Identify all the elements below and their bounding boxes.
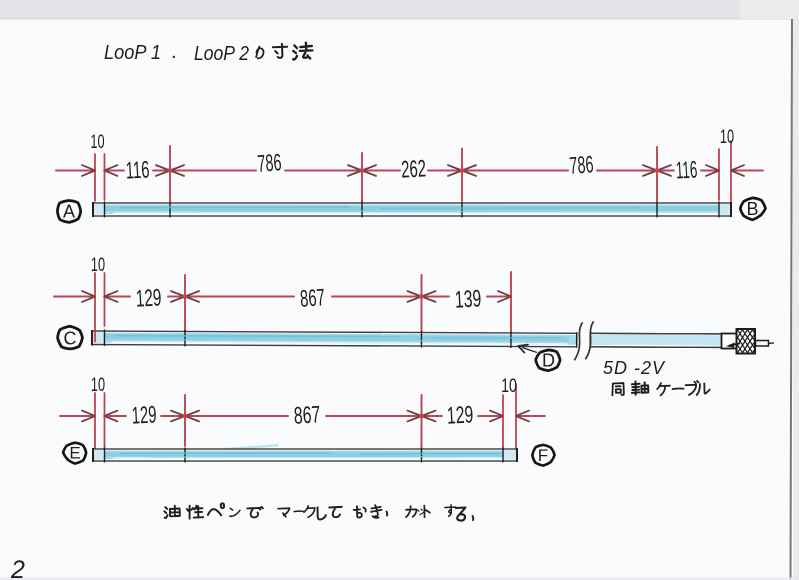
svg-text:129: 129 <box>135 285 162 313</box>
svg-text:867: 867 <box>293 402 321 429</box>
svg-text:D: D <box>542 351 555 371</box>
svg-text:10: 10 <box>501 375 517 396</box>
svg-text:867: 867 <box>299 285 326 313</box>
svg-text:F: F <box>538 446 548 465</box>
svg-text:10: 10 <box>90 132 104 153</box>
svg-text:262: 262 <box>401 156 427 184</box>
svg-text:B: B <box>746 199 758 219</box>
svg-text:2: 2 <box>10 556 25 580</box>
svg-text:10: 10 <box>720 127 734 148</box>
svg-text:LooP 1: LooP 1 <box>104 42 161 64</box>
svg-text:116: 116 <box>675 156 698 184</box>
svg-text:E: E <box>69 444 80 463</box>
svg-text:116: 116 <box>125 157 150 185</box>
svg-text:786: 786 <box>257 150 283 178</box>
svg-text:129: 129 <box>446 402 474 429</box>
svg-text:A: A <box>63 202 75 222</box>
svg-text:139: 139 <box>454 286 482 313</box>
svg-text:C: C <box>64 329 77 349</box>
svg-text:LooP 2: LooP 2 <box>194 43 249 65</box>
svg-text:129: 129 <box>131 402 157 430</box>
svg-text:5D -2V: 5D -2V <box>603 358 666 378</box>
svg-text:.: . <box>171 41 177 63</box>
svg-text:10: 10 <box>91 375 105 396</box>
svg-text:10: 10 <box>91 255 105 276</box>
svg-text:786: 786 <box>569 152 595 180</box>
